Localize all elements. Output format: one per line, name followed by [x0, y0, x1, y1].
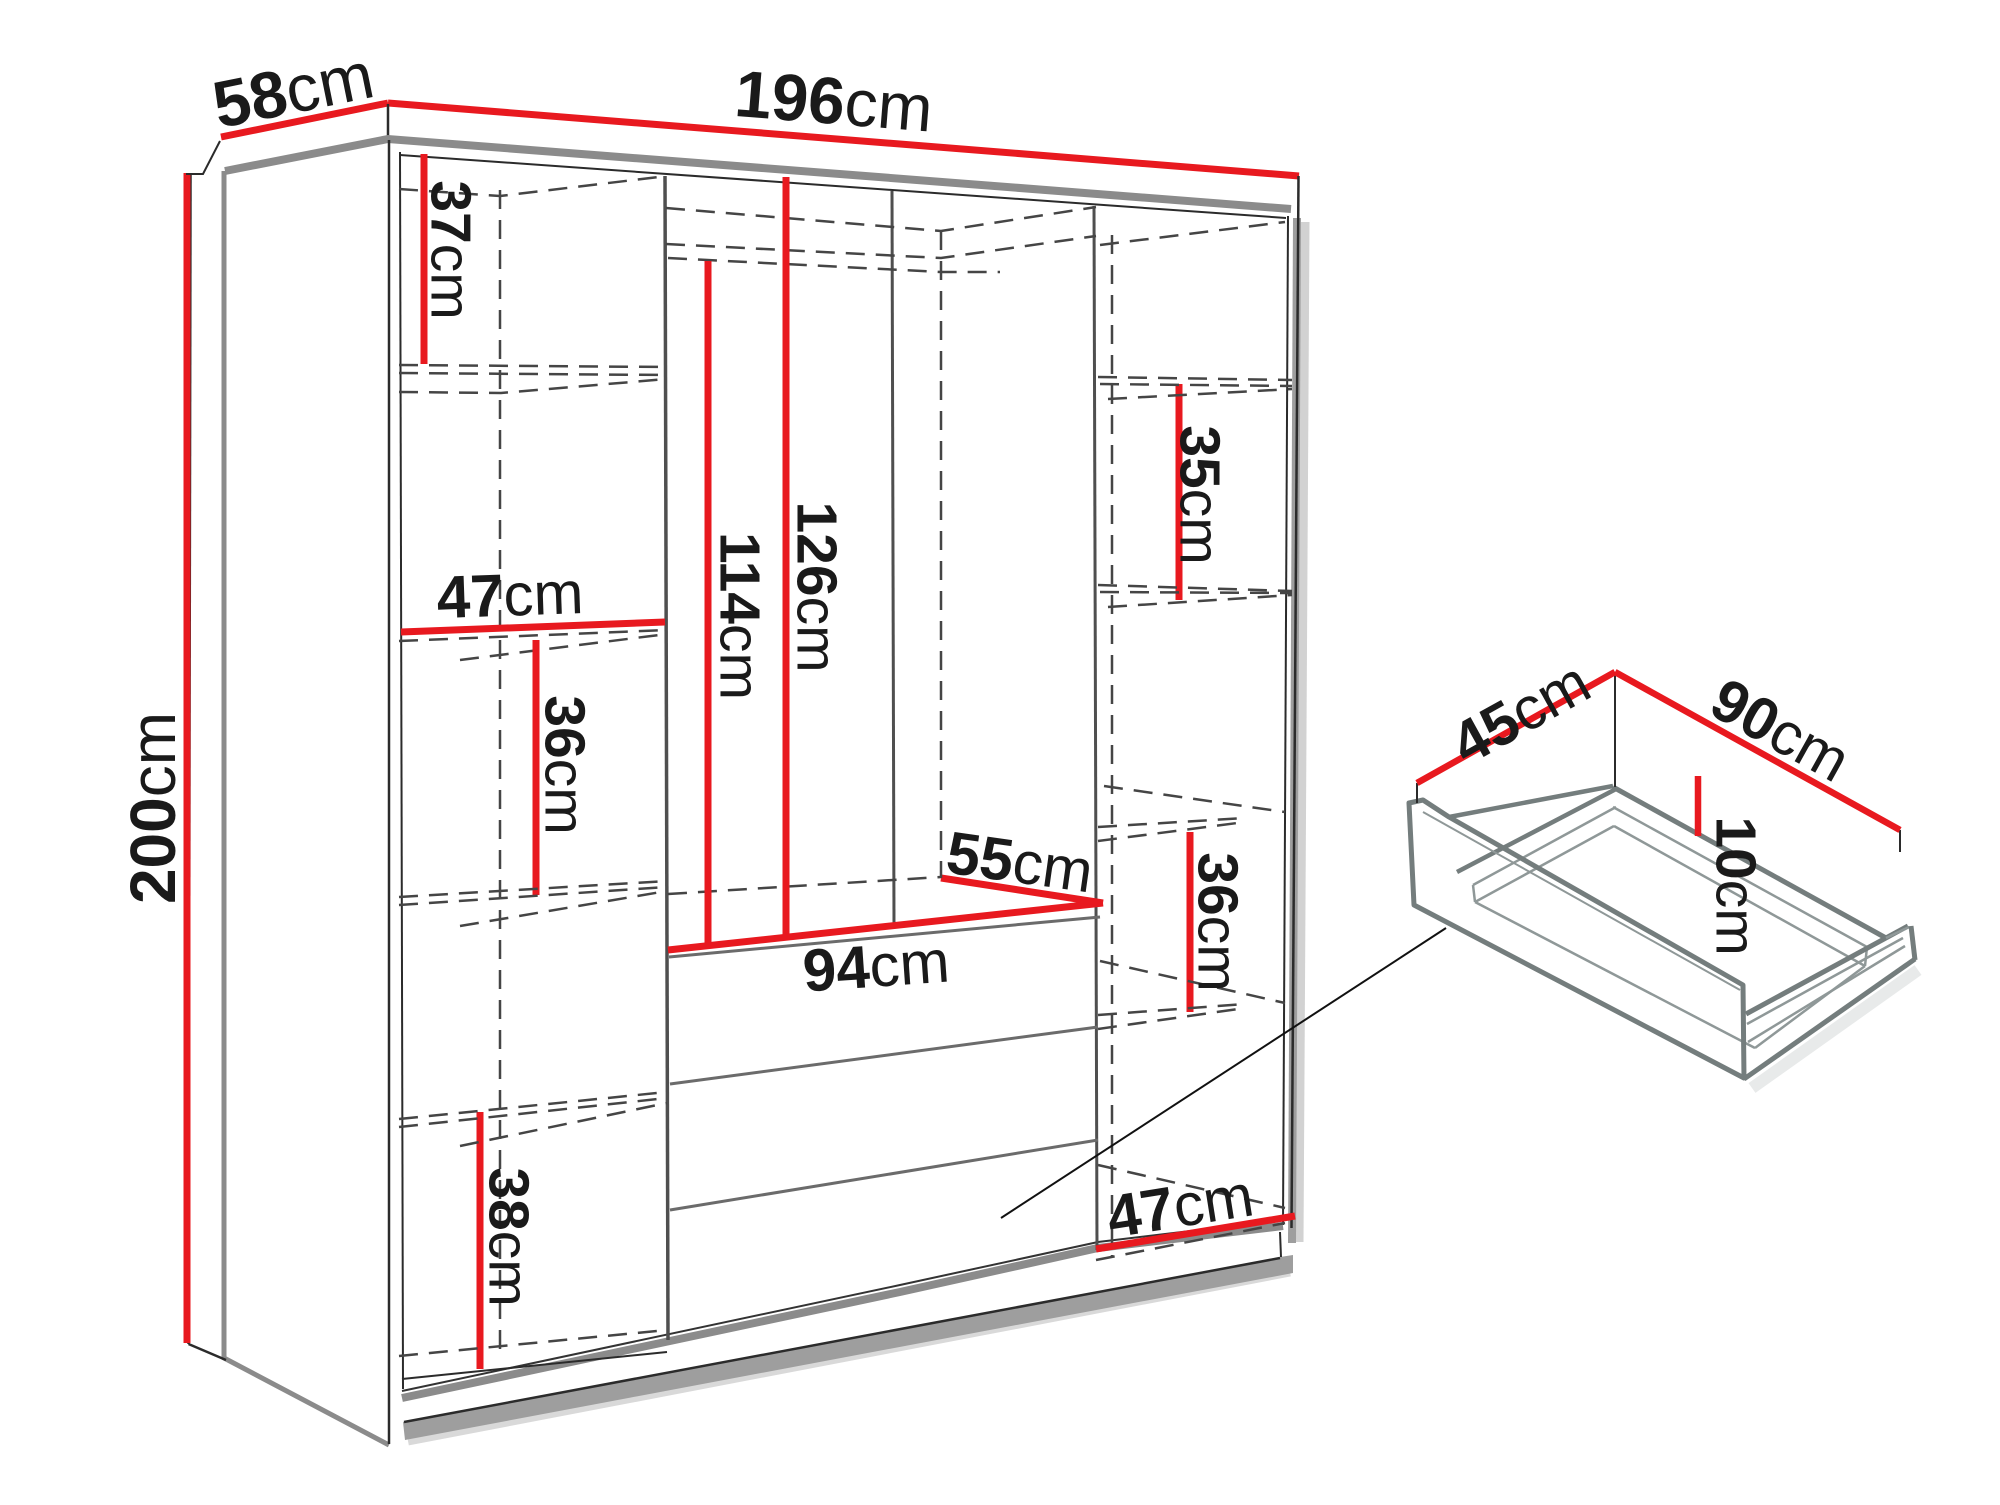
svg-text:37cm: 37cm: [418, 180, 482, 319]
svg-text:94cm: 94cm: [801, 928, 952, 1005]
svg-text:126cm: 126cm: [784, 501, 848, 672]
svg-text:200cm: 200cm: [117, 712, 189, 904]
svg-text:36cm: 36cm: [532, 695, 596, 834]
svg-text:196cm: 196cm: [732, 56, 935, 146]
svg-text:47cm: 47cm: [436, 559, 585, 631]
svg-text:36cm: 36cm: [1185, 852, 1249, 991]
svg-text:38cm: 38cm: [476, 1167, 540, 1306]
svg-text:10cm: 10cm: [1703, 816, 1767, 955]
svg-text:35cm: 35cm: [1167, 425, 1231, 564]
svg-text:114cm: 114cm: [707, 532, 771, 700]
